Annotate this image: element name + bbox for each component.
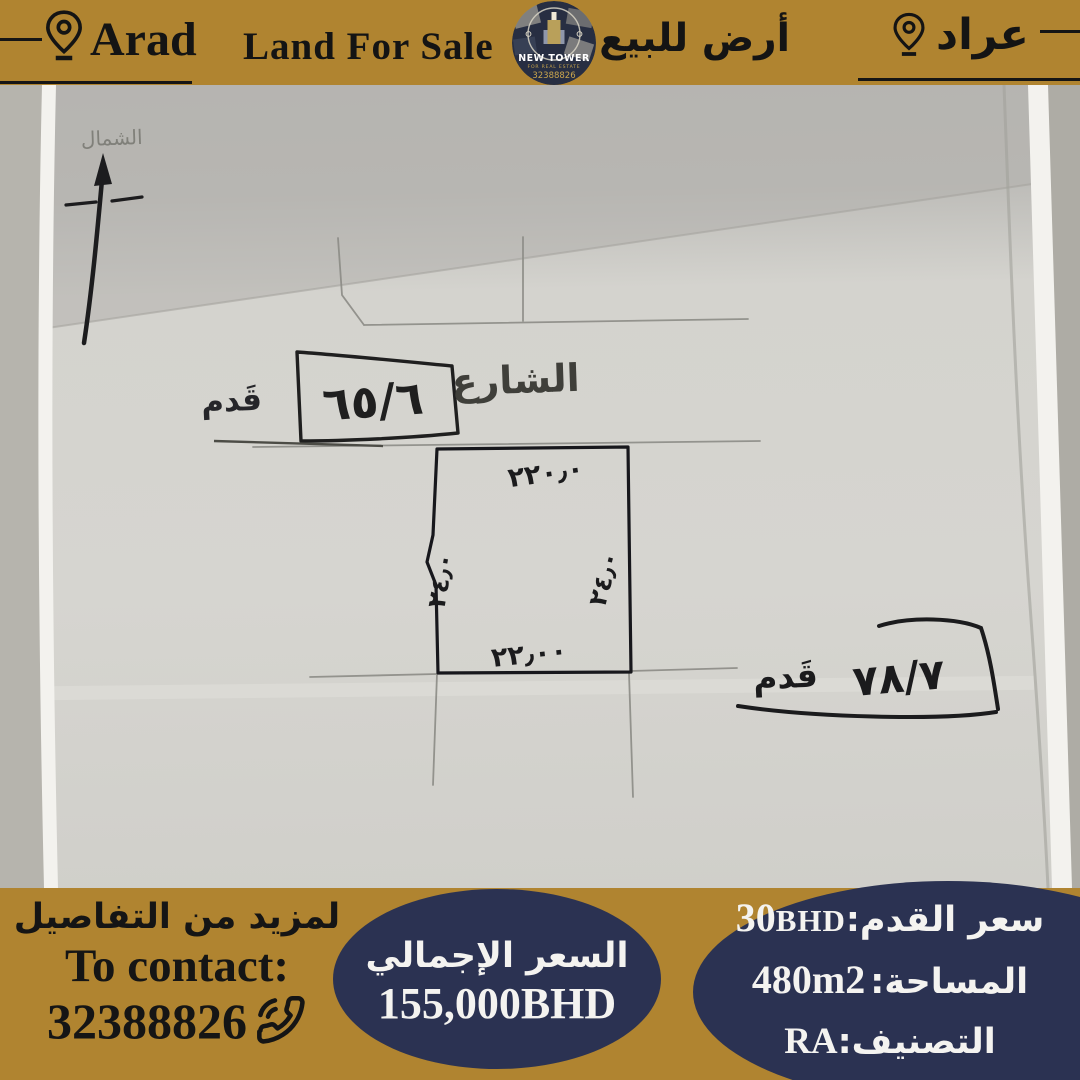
logo-name: NEW TOWER [518, 53, 590, 64]
classification-row: التصنيف:RA [712, 1018, 1068, 1078]
price-per-foot-currency: BHD [776, 903, 846, 938]
classification-value: RA [784, 1021, 837, 1062]
dim-right: ٢٤٫٠ [583, 548, 625, 609]
phone-row: 32388826 [12, 992, 342, 1050]
total-price-label: السعر الإجمالي [366, 934, 629, 978]
survey-thin-lines [253, 237, 760, 797]
flyer-canvas: Arad Land For Sale NEW TOWER FOR REAL ES… [0, 0, 1080, 1080]
classification-label: التصنيف: [838, 1022, 996, 1062]
area-row: المساحة: 480m2 [712, 956, 1068, 1018]
location-pin-icon [42, 8, 86, 64]
contact-block: لمزيد من التفاصيل To contact: 32388826 [12, 894, 342, 1050]
page-title-en: Land For Sale [243, 24, 494, 69]
location-en: Arad [90, 12, 197, 67]
phone-number: 32388826 [47, 992, 247, 1050]
details-panel: سعر القدم:30​BHD المساحة: 480m2 التصنيف:… [712, 894, 1068, 1078]
agency-logo: NEW TOWER FOR REAL ESTATE 32388826 [511, 0, 597, 86]
paper-top-fold-shade [0, 85, 1080, 335]
dim-bottom: ٢٢٫٠٠ [490, 635, 569, 674]
plot-dimensions: ٢٢٠٫٠ ٢٢٫٠٠ ٢٤٫٠ ٢٤٫٠ [422, 453, 625, 674]
price-per-foot-row: سعر القدم:30​BHD [712, 894, 1068, 956]
more-details-ar: لمزيد من التفاصيل [12, 894, 342, 940]
decor-underline-left [0, 81, 192, 84]
total-price-oval: السعر الإجمالي 155,000BHD [333, 889, 661, 1069]
area-label: المساحة: [870, 962, 1028, 1002]
page-title-ar: أرض للبيع [605, 16, 790, 61]
to-contact-en: To contact: [12, 940, 342, 992]
parcel-right-unit: قَدم [752, 655, 819, 697]
parcel-right-label: ٧٨/٧ قَدم [738, 619, 998, 717]
location-ar: عراد [936, 10, 1029, 60]
price-per-foot-value: 30 [736, 895, 776, 940]
phone-icon [255, 995, 307, 1047]
dim-top: ٢٢٠٫٠ [506, 453, 586, 494]
parcel-right-number: ٧٨/٧ [851, 649, 948, 706]
survey-sketch-photo: الشمال ٦٥/٦ قَدم الشارع ٢٢٠٫٠ ٢٢٫٠٠ ٢٤٫٠… [0, 85, 1080, 888]
parcel-left-label: ٦٥/٦ قَدم [200, 352, 458, 446]
decor-line-left [0, 38, 42, 41]
price-per-foot-label: سعر القدم: [846, 900, 1044, 940]
total-price-value: 155,000BHD [378, 978, 616, 1030]
top-banner: Arad Land For Sale NEW TOWER FOR REAL ES… [0, 0, 1080, 85]
logo-phone: 32388826 [532, 71, 575, 81]
street-label: الشارع [451, 356, 581, 404]
sketch-overlay: الشمال ٦٥/٦ قَدم الشارع ٢٢٠٫٠ ٢٢٫٠٠ ٢٤٫٠… [0, 85, 1080, 888]
location-pin-icon-ar [890, 10, 928, 60]
decor-line-right [1040, 30, 1080, 33]
decor-underline-right [858, 78, 1080, 81]
area-value: 480m2 [752, 957, 865, 1002]
bottom-banner: لمزيد من التفاصيل To contact: 32388826 ا… [0, 888, 1080, 1080]
logo-tagline: FOR REAL ESTATE [528, 64, 581, 70]
parcel-left-unit: قَدم [200, 381, 263, 420]
north-label: الشمال [81, 125, 143, 151]
parcel-left-number: ٦٥/٦ [321, 371, 426, 432]
backdrop-left [0, 85, 44, 888]
